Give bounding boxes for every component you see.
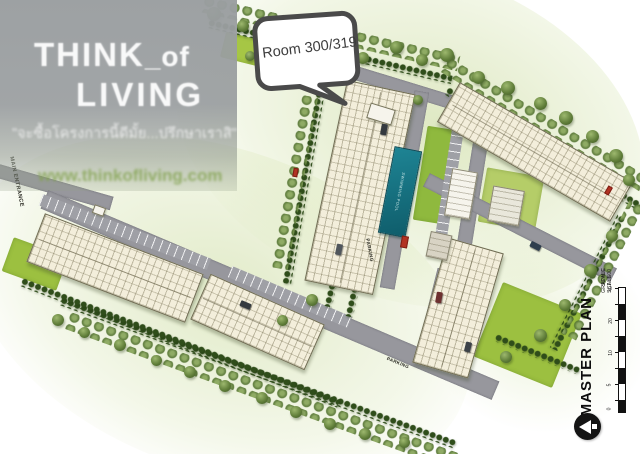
watermark-title-line2: LIVING [76,76,204,114]
tree [324,418,336,430]
tree [416,54,428,66]
tree [306,294,318,306]
master-plan-image: SWIMMING POOL MAIN ENTRANCE PARKING PARK… [0,0,640,454]
tree [114,339,126,351]
watermark-tagline: "จะซื้อโครงการนี้ดีมั้ย...ปรึกษาเราสิ" [12,122,237,145]
scale-tick: 20 [608,318,614,324]
tree [586,130,599,143]
tree [584,264,597,277]
tree [399,437,410,448]
tree [559,111,573,125]
clubhouse-annex [487,185,525,226]
tree [290,406,302,418]
tree [440,48,454,62]
tree [609,149,623,163]
tree [500,351,512,363]
pool-label: SWIMMING POOL [394,172,407,212]
watermark-title-line1: THINK_of [34,36,190,74]
watermark-panel: THINK_of LIVING "จะซื้อโครงการนี้ดีมั้ย.… [0,0,237,191]
tree [534,97,547,110]
watermark-think: THINK [34,36,145,73]
master-plan-title-text: MASTER PLAN [578,297,595,416]
tree [52,314,64,326]
tree [256,392,268,404]
scale-tick: 0 [606,408,612,411]
tree [151,355,162,366]
tree [184,366,196,378]
scale-tick: 5 [606,384,612,387]
tree [501,81,515,95]
tree [606,230,618,242]
north-arrow-icon [574,413,601,440]
tree [472,71,485,84]
scale-tick: 40 [608,286,614,292]
master-plan-title: MASTER PLAN [566,296,606,418]
graphic-scale-bar [618,287,626,413]
tree [219,380,231,392]
scale-tick: 10 [608,350,614,356]
tree [413,95,423,105]
tree [79,327,90,338]
tree [277,315,288,326]
tree [534,329,547,342]
tree [390,41,403,54]
tree [359,428,371,440]
tree [623,174,635,186]
scale-caption-line1: SCALE 1 : 500 [601,268,613,286]
watermark-url: www.thinkofliving.com [38,166,223,186]
watermark-of: _of [145,41,190,72]
